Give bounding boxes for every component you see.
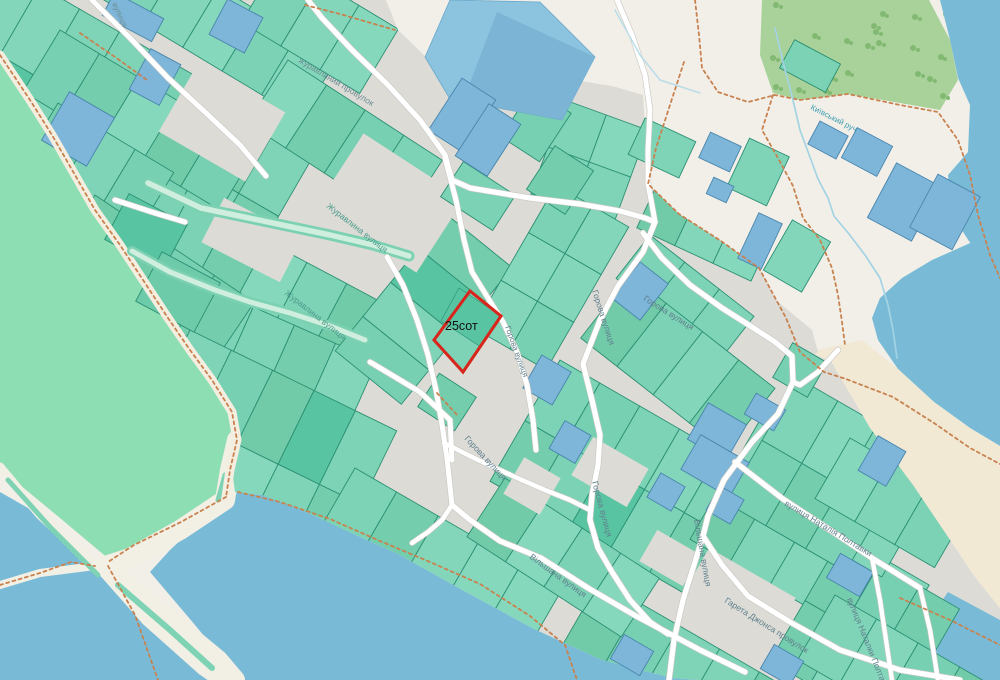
svg-text:25сот: 25сот — [445, 319, 478, 333]
